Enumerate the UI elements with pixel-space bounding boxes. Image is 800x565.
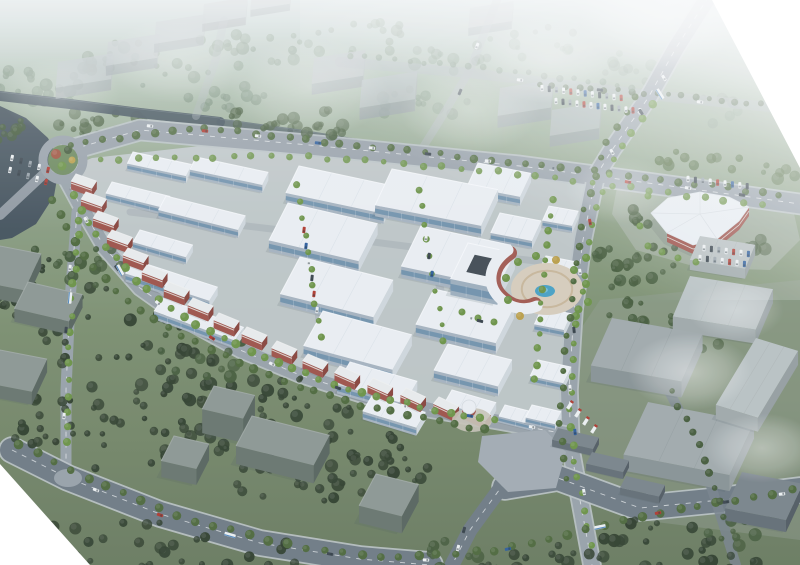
aerial-rendering [0,0,800,565]
cool-color-grade [0,0,800,565]
fog-overlay [0,0,800,565]
rendering-canvas [0,0,800,565]
